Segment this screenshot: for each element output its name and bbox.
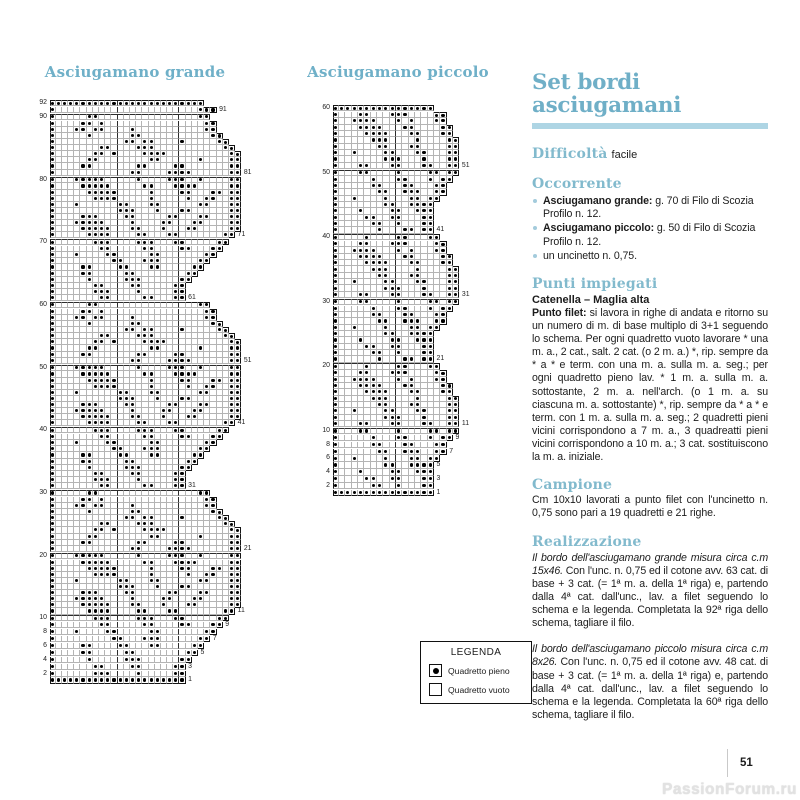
legend-box: LEGENDA Quadretto pienoQuadretto vuoto [420,641,532,704]
realizzazione-heading: Realizzazione [532,534,768,550]
section-realizzazione: Realizzazione Il bordo dell'asciugamano … [532,534,768,723]
chart-row: 3 [27,664,251,671]
page-number: 51 [740,757,753,769]
chart-row: 20 [27,553,251,560]
punti-heading: Punti impiegati [532,276,768,292]
occorrente-item: Asciugamano grande: g. 70 di Filo di Sco… [532,195,768,221]
chart-row: 11 [27,608,251,615]
chart-row: 31 [27,483,251,490]
punti-subheading: Catenella – Maglia alta [532,294,768,306]
chart-row: 50 [310,170,470,177]
footer-divider [727,749,728,777]
filet-chart-small: 6051504140313021201110987654321 [310,105,470,497]
difficulty-value: facile [612,149,638,161]
chart-row: 21 [27,546,251,553]
chart-row: 30 [310,299,470,306]
difficulty-label: Difficoltà [532,146,608,162]
legend-item-label: Quadretto vuoto [448,685,510,695]
chart-row: 30 [27,490,251,497]
chart-row: 10 [27,615,251,622]
chart-row: 6 [27,643,251,650]
chart-row: 5 [27,650,251,657]
chart-row: 70 [27,239,251,246]
chart-row: 41 [27,420,251,427]
empty-square-icon [429,683,442,696]
occorrente-item: Asciugamano piccolo: g. 50 di Filo di Sc… [532,222,768,248]
legend-item: Quadretto vuoto [429,683,523,696]
chart-row: 2 [310,483,470,490]
legend-items: Quadretto pienoQuadretto vuoto [429,664,523,696]
chart-row: 51 [27,358,251,365]
watermark: PassionForum.ru [662,781,797,799]
chart-row: 41 [310,227,470,234]
chart-row: 2 [27,671,251,678]
occorrente-list: Asciugamano grande: g. 70 di Filo di Sco… [532,195,768,263]
occorrente-item: un uncinetto n. 0,75. [532,250,768,263]
legend-item-label: Quadretto pieno [448,666,510,676]
page-title: Set bordi asciugamani [532,72,768,117]
chart-row: 71 [27,232,251,239]
chart-row: 5 [310,462,470,469]
chart-row: 40 [27,427,251,434]
section-punti: Punti impiegati Catenella – Maglia alta … [532,276,768,465]
chart-row: 9 [310,435,470,442]
campione-text: Cm 10x10 lavorati a punto filet con l'un… [532,494,768,520]
chart-row: 90 [27,114,251,121]
occorrente-heading: Occorrente [532,176,768,192]
campione-heading: Campione [532,477,768,493]
title-underline-bar [532,123,768,129]
chart-row: 8 [310,442,470,449]
legend-title: LEGENDA [429,647,523,658]
chart-row: 60 [27,302,251,309]
chart-row: 1 [310,490,470,497]
realizzazione-paragraphs: Il bordo dell'asciugamano grande misura … [532,552,768,723]
section-occorrente: Occorrente Asciugamano grande: g. 70 di … [532,176,768,263]
chart-row: 3 [310,476,470,483]
chart-row: 4 [27,657,251,664]
difficulty-row: Difficoltàfacile [532,145,768,163]
chart-title-large: Asciugamano grande [27,63,243,81]
chart-row: 20 [310,363,470,370]
punti-paragraph: Punto filet: si lavora in righe di andat… [532,307,768,465]
filled-square-icon [429,664,442,677]
legend-item: Quadretto pieno [429,664,523,677]
chart-row: 92 [27,100,251,107]
chart-row: 80 [27,177,251,184]
chart-row: 10 [310,428,470,435]
filet-chart-large: 9291908180717061605150414031302120111098… [27,100,251,684]
chart-row: 31 [310,292,470,299]
chart-row: 4 [310,469,470,476]
punti-lead: Punto filet: [532,307,586,319]
chart-row: 7 [27,636,251,643]
chart-row: 1 [27,677,251,684]
chart-row: 81 [27,170,251,177]
chart-row: 61 [27,295,251,302]
chart-row: 91 [27,107,251,114]
punti-text: si lavora in righe di andata e ritorno s… [532,307,768,463]
realizzazione-paragraph: Il bordo dell'asciugamano grande misura … [532,552,768,631]
realizzazione-paragraph: Il bordo dell'asciugamano piccolo misura… [532,643,768,722]
chart-row: 8 [27,629,251,636]
chart-row: 40 [310,234,470,241]
chart-row: 11 [310,421,470,428]
article-column: Set bordi asciugamani Difficoltàfacile O… [532,72,768,735]
chart-row: 50 [27,365,251,372]
chart-row: 21 [310,356,470,363]
chart-row: 51 [310,163,470,170]
chart-row: 6 [310,455,470,462]
chart-row: 9 [27,622,251,629]
chart-title-small: Asciugamano piccolo [300,63,496,81]
chart-row: 60 [310,105,470,112]
section-campione: Campione Cm 10x10 lavorati a punto filet… [532,477,768,520]
chart-row: 7 [310,449,470,456]
